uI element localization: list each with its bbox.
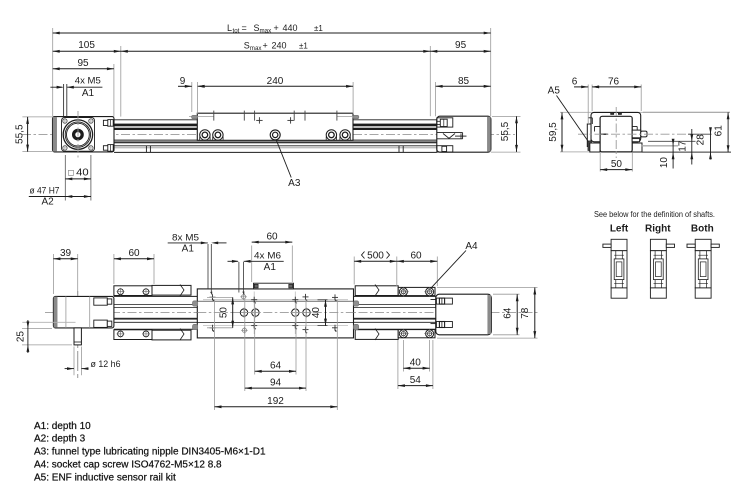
svg-text:59,5: 59,5 (548, 122, 559, 142)
svg-text:25: 25 (16, 331, 27, 343)
svg-text:40: 40 (410, 357, 422, 368)
svg-text:440: 440 (283, 23, 298, 33)
svg-text:A2: depth 3: A2: depth 3 (34, 434, 86, 445)
svg-text:A1: A1 (182, 244, 195, 255)
svg-text:A3: funnel type lubricating ni: A3: funnel type lubricating nipple DIN34… (34, 447, 266, 458)
svg-text:ø 47 H7: ø 47 H7 (30, 186, 60, 197)
svg-text:40: 40 (311, 307, 322, 319)
svg-text:max: max (260, 28, 273, 35)
svg-text:61: 61 (714, 125, 725, 137)
svg-text:55,5: 55,5 (14, 124, 25, 144)
svg-text:76: 76 (608, 76, 620, 87)
svg-text:85: 85 (458, 76, 470, 87)
svg-text:95: 95 (77, 58, 89, 69)
svg-text:6: 6 (572, 76, 578, 87)
svg-text:+: + (263, 41, 268, 51)
svg-text:A5: ENF inductive sensor rail: A5: ENF inductive sensor rail kit (34, 473, 176, 484)
svg-text:60: 60 (266, 232, 278, 243)
svg-text:50: 50 (218, 307, 229, 319)
svg-text:17: 17 (677, 140, 688, 152)
svg-text:95: 95 (455, 40, 467, 51)
svg-text:40: 40 (76, 167, 89, 178)
svg-text:60: 60 (128, 248, 140, 259)
svg-text:A4: socket cap screw ISO4762-M: A4: socket cap screw ISO4762-M5×12 8.8 (34, 460, 222, 471)
svg-text:105: 105 (78, 40, 95, 51)
svg-text:10: 10 (659, 157, 670, 169)
svg-text:Both: Both (691, 224, 714, 235)
svg-text:L: L (227, 23, 232, 33)
svg-text:78: 78 (520, 307, 531, 319)
svg-text:±1: ±1 (314, 24, 323, 33)
svg-text:64: 64 (270, 361, 282, 372)
svg-text:94: 94 (270, 377, 282, 388)
svg-text:28: 28 (696, 134, 707, 146)
svg-text:4x M5: 4x M5 (75, 76, 101, 87)
svg-text:A1: depth 10: A1: depth 10 (34, 421, 91, 432)
svg-text:500: 500 (367, 251, 384, 262)
svg-text:4x M6: 4x M6 (254, 251, 281, 262)
svg-text:ø 12 h6: ø 12 h6 (91, 359, 121, 370)
svg-text:A3: A3 (288, 178, 301, 189)
svg-text:Left: Left (610, 224, 629, 235)
svg-text:8x M5: 8x M5 (172, 232, 199, 243)
svg-text:+: + (274, 23, 279, 33)
svg-text:A1: A1 (264, 262, 277, 273)
svg-text:240: 240 (272, 41, 287, 51)
svg-text:A2: A2 (41, 197, 54, 208)
svg-text:=: = (242, 23, 247, 33)
svg-text:Right: Right (645, 224, 671, 235)
svg-text:39: 39 (60, 248, 72, 259)
svg-text:64: 64 (502, 307, 513, 319)
svg-text:A5: A5 (548, 86, 561, 97)
svg-text:192: 192 (267, 396, 284, 407)
svg-text:□: □ (68, 167, 74, 177)
svg-text:9: 9 (180, 76, 186, 87)
svg-text:240: 240 (267, 76, 284, 87)
svg-text:max: max (250, 45, 263, 52)
svg-text:55,5: 55,5 (500, 121, 511, 141)
svg-text:54: 54 (410, 375, 422, 386)
svg-text:tot: tot (233, 28, 240, 35)
svg-text:±1: ±1 (299, 42, 308, 51)
svg-text:See below for the definition o: See below for the definition of shafts. (594, 210, 715, 219)
svg-text:50: 50 (611, 159, 623, 170)
svg-text:60: 60 (410, 251, 422, 262)
svg-text:A1: A1 (82, 88, 95, 99)
svg-text:A4: A4 (465, 241, 478, 252)
